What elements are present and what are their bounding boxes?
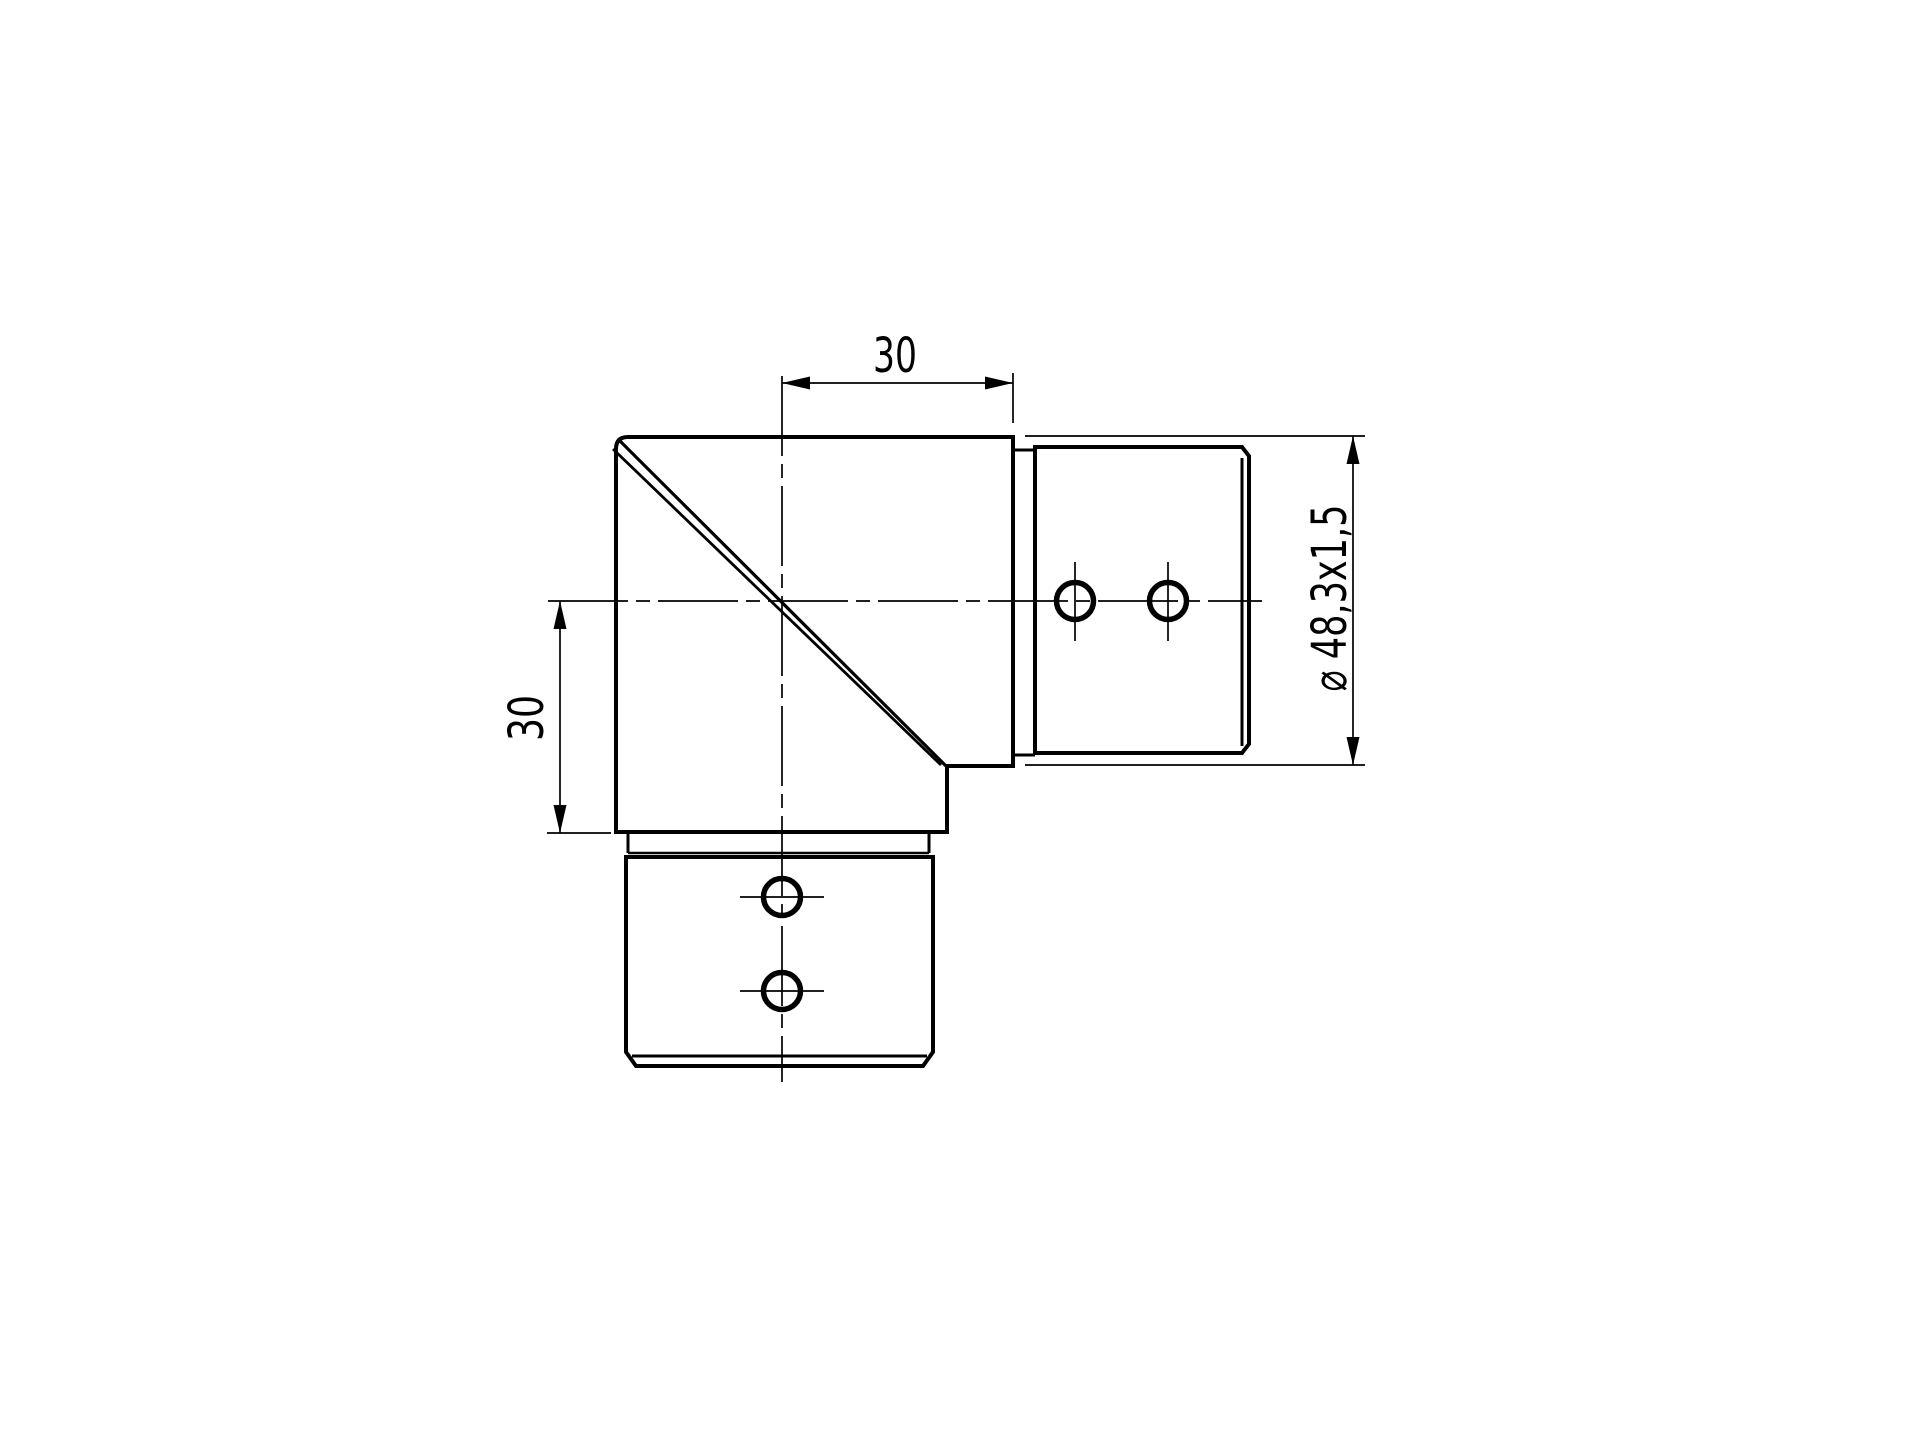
diameter-dim-label: ⌀ 48,3x1,5 [1302, 505, 1358, 692]
technical-drawing: 30 30 ⌀ 48,3x1,5 [0, 0, 1920, 1440]
left-dim-label: 30 [499, 695, 555, 741]
top-dim-label: 30 [873, 328, 917, 384]
drawing-canvas: 30 30 ⌀ 48,3x1,5 [0, 0, 1920, 1440]
drawing-background [0, 0, 1920, 1440]
